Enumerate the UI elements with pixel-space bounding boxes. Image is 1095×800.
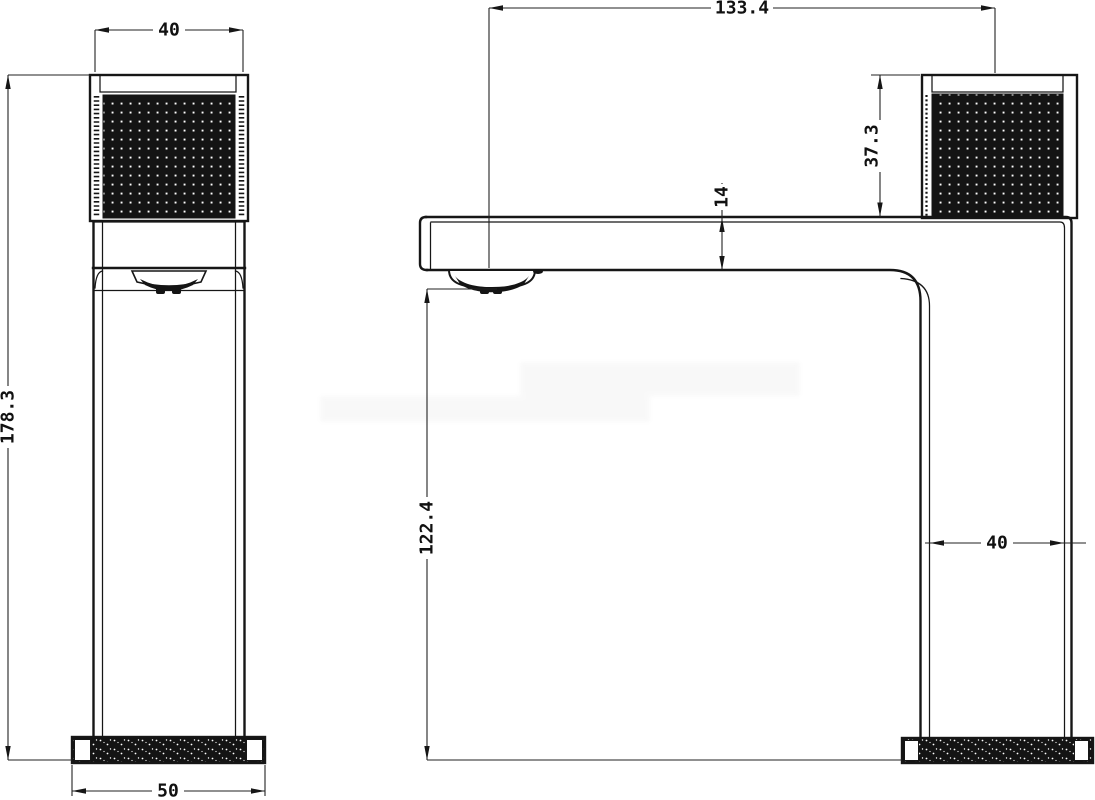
front-collar-fillet-right — [236, 271, 244, 288]
dim-side-body-depth: 40 — [925, 533, 1086, 554]
arrowhead — [930, 540, 944, 545]
side-arm-top-inner-line — [431, 222, 1065, 738]
side-spout-aerator — [449, 269, 543, 294]
side-arm-bottom-and-elbow — [427, 270, 921, 738]
arrowhead — [424, 289, 429, 303]
front-handle-cap-line — [100, 76, 236, 92]
arrowhead — [489, 5, 503, 10]
technical-drawing-canvas: 40 178.3 — [0, 0, 1095, 800]
arrowhead — [719, 218, 724, 232]
arrowhead — [719, 256, 724, 270]
dim-front-total-height: 178.3 — [0, 75, 90, 760]
arrowhead — [1050, 540, 1064, 545]
dim-front-base-width: 50 — [72, 765, 265, 800]
side-base-cap-right — [1075, 741, 1089, 761]
arrowhead — [95, 27, 109, 32]
arrowhead — [981, 5, 995, 10]
dim-label-side-body-depth: 40 — [986, 533, 1008, 554]
side-handle-cap-line — [932, 76, 1063, 92]
side-aerator-tab — [480, 287, 489, 294]
dim-label-side-spout-reach: 133.4 — [715, 0, 769, 19]
arrowhead — [251, 788, 265, 793]
arrowhead — [5, 746, 10, 760]
dim-side-spout-to-base: 122.4 — [417, 289, 903, 760]
side-elbow-inner-line — [901, 279, 930, 739]
front-base-cap-left — [75, 740, 91, 761]
drawing-sheet: 40 178.3 — [0, 0, 1095, 800]
side-arm-top-and-right-outline — [426, 217, 1072, 738]
dim-label-front-base-width: 50 — [157, 781, 179, 800]
side-base — [902, 738, 1093, 763]
front-base — [72, 737, 265, 763]
front-aerator-tray — [132, 271, 206, 286]
arrowhead — [229, 27, 243, 32]
front-base-cap-right — [247, 740, 263, 761]
side-view: 133.4 37.3 14 — [417, 0, 1094, 763]
side-aerator-tab — [493, 287, 502, 294]
front-view: 40 178.3 — [0, 20, 265, 800]
dim-side-spout-thickness: 14 — [712, 183, 733, 270]
dim-side-spout-reach: 133.4 — [489, 0, 995, 268]
dim-front-handle-width: 40 — [95, 20, 243, 73]
arrowhead — [5, 75, 10, 89]
arrowhead — [877, 203, 882, 217]
side-handle-knurl-texture — [932, 94, 1063, 218]
dim-label-front-total-height: 178.3 — [0, 390, 19, 444]
arrowhead — [877, 75, 882, 89]
dim-label-front-handle-width: 40 — [158, 20, 180, 41]
dim-label-side-handle-height: 37.3 — [862, 124, 883, 167]
front-collar-fillet-left — [95, 271, 103, 288]
dim-label-side-spout-thickness: 14 — [712, 186, 733, 208]
side-base-cap-left — [905, 741, 919, 761]
side-aerator-edge-mark — [533, 269, 543, 274]
front-aerator-tab — [156, 287, 165, 294]
front-aerator-tab — [172, 287, 181, 294]
dim-label-side-spout-to-base: 122.4 — [417, 501, 438, 555]
side-arm-nose-outline — [420, 217, 427, 270]
arrowhead — [72, 788, 86, 793]
arrowhead — [424, 746, 429, 760]
dim-side-handle-height: 37.3 — [862, 75, 921, 217]
front-handle-knurl-texture — [103, 95, 235, 218]
